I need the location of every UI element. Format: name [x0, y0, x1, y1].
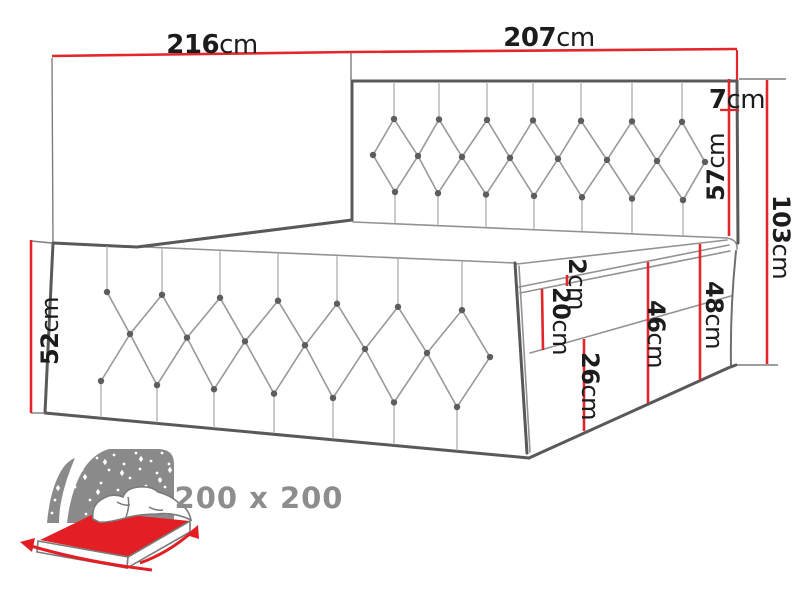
tuft-button [531, 193, 537, 199]
tuft-line [657, 161, 683, 200]
star-dot [85, 513, 88, 516]
tuft-button [578, 118, 584, 124]
tuft-button [629, 195, 635, 201]
tuft-button [507, 155, 513, 161]
tuft-line [462, 157, 486, 195]
tuft-button [217, 295, 223, 301]
mattress-silhouette [53, 220, 352, 247]
tuft-button [275, 298, 281, 304]
star-dot [108, 469, 111, 472]
bed-right-edge [731, 251, 736, 366]
tuft-button [391, 399, 397, 405]
tuft-line [365, 349, 394, 402]
tuft-line [462, 310, 490, 357]
tuft-button [395, 304, 401, 310]
star-dot [51, 512, 54, 515]
dimension-label-48: 48cm [700, 281, 728, 349]
dimension-label-207: 207cm [503, 23, 594, 53]
tuft-line [427, 353, 457, 407]
tuft-button [679, 119, 685, 125]
dimension-label-26: 26cm [576, 352, 604, 420]
tuft-line [365, 307, 398, 349]
tuft-line [395, 156, 418, 192]
tuft-button [555, 156, 561, 162]
tuft-line [214, 341, 245, 389]
tuft-line [333, 349, 365, 398]
tuft-button [454, 404, 460, 410]
tuft-line [245, 341, 274, 393]
dimension-label-46: 46cm [642, 300, 670, 368]
tuft-line [305, 345, 333, 398]
tuft-line [394, 119, 418, 156]
tuft-line [274, 345, 305, 393]
tuft-line [101, 334, 130, 381]
tuft-line [245, 301, 278, 342]
dimension-labels: 216cm 207cm 7cm 57cm 103cm 52cm 2cm 20cm… [36, 23, 795, 420]
tuft-line [394, 353, 427, 402]
tuft-line [558, 159, 582, 197]
dimension-label-7: 7cm [709, 85, 765, 115]
star-dot [168, 463, 171, 466]
tuft-line [657, 122, 682, 161]
tuft-line [533, 120, 558, 158]
tuft-line [418, 156, 438, 193]
star-dot [123, 463, 126, 466]
tuft-button [392, 189, 398, 195]
tuft-button [424, 350, 430, 356]
tuft-button [159, 292, 165, 298]
tuft-button [98, 378, 104, 384]
diagram-svg: 216cm 207cm 7cm 57cm 103cm 52cm 2cm 20cm… [0, 0, 800, 600]
tuft-button [680, 197, 686, 203]
tuft-line [581, 121, 607, 160]
tuft-line [107, 292, 130, 334]
tuft-button [579, 194, 585, 200]
side-panel-tufting [98, 246, 493, 450]
tuft-line [337, 304, 365, 349]
tuft-button [483, 191, 489, 197]
star-dot [129, 477, 132, 480]
tuft-line [510, 158, 534, 196]
tuft-line [582, 160, 607, 197]
extension-line-216 [52, 58, 53, 242]
tuft-button [370, 152, 376, 158]
mattress-corner-curve [727, 238, 737, 249]
size-label: 200 x 200 [175, 481, 344, 515]
dimension-label-20: 20cm [547, 287, 575, 355]
tuft-line [278, 301, 305, 345]
star-dot [150, 460, 153, 463]
star-dot [113, 454, 116, 457]
tuft-line [558, 121, 581, 159]
dimension-lines [31, 49, 786, 431]
tuft-line [162, 295, 187, 338]
tuft-line [457, 357, 490, 407]
tuft-button [415, 153, 421, 159]
tuft-line [632, 161, 657, 199]
bed-size-icon [20, 449, 199, 570]
tuft-button [211, 386, 217, 392]
star-dot [74, 486, 77, 489]
tuft-button [271, 390, 277, 396]
star-dot [161, 452, 164, 455]
tuft-button [184, 334, 190, 340]
tuft-line [220, 298, 245, 342]
tuft-line [130, 334, 157, 385]
tuft-line [487, 120, 510, 158]
tuft-line [157, 338, 187, 385]
bed-thin-lines [53, 222, 737, 452]
headboard-tufting [370, 82, 708, 235]
tuft-line [632, 121, 657, 161]
star-dot [81, 469, 84, 472]
tuft-line [462, 120, 487, 157]
tuft-line [439, 119, 462, 156]
star-dot [117, 489, 120, 492]
tuft-line [187, 298, 220, 338]
star-dot [164, 486, 167, 489]
tuft-button [459, 307, 465, 313]
tuft-button [391, 116, 397, 122]
tuft-button [530, 117, 536, 123]
dimension-label-103: 103cm [767, 195, 795, 279]
tuft-button [154, 382, 160, 388]
tuft-button [330, 395, 336, 401]
tuft-button [362, 346, 368, 352]
star-dot [96, 457, 99, 460]
tuft-line [373, 119, 394, 155]
tuft-line [486, 158, 510, 195]
tuft-button [104, 289, 110, 295]
tuft-button [334, 301, 340, 307]
tuft-line [398, 307, 427, 353]
dimension-label-57: 57cm [702, 133, 730, 201]
tuft-line [373, 155, 395, 192]
tuft-button [487, 354, 493, 360]
bed-dimension-diagram: 216cm 207cm 7cm 57cm 103cm 52cm 2cm 20cm… [0, 0, 800, 600]
tuft-line [510, 120, 533, 157]
icon-width-arrowhead [20, 538, 35, 552]
tuft-line [534, 159, 558, 196]
mattress-back-edge [353, 222, 727, 238]
tuft-line [607, 121, 632, 160]
dimension-line-216-207 [52, 49, 737, 56]
tuft-button [629, 118, 635, 124]
star-dot [100, 482, 103, 485]
tuft-line [418, 119, 439, 155]
tuft-line [438, 157, 462, 193]
dimension-line-20 [542, 289, 543, 350]
dimension-label-52: 52cm [36, 297, 64, 365]
star-dot [139, 468, 142, 471]
star-dot [54, 499, 57, 502]
dimension-label-216: 216cm [166, 30, 257, 60]
tuft-line [427, 310, 462, 353]
tuft-line [187, 338, 214, 390]
tuft-line [305, 304, 337, 345]
star-dot [156, 472, 159, 475]
star-dot [135, 452, 138, 455]
tuft-button [302, 342, 308, 348]
tuft-button [242, 338, 248, 344]
bed-drawing [45, 81, 738, 458]
tuft-button [459, 154, 465, 160]
tuft-line [607, 160, 632, 199]
tuft-button [436, 116, 442, 122]
tuft-button [654, 158, 660, 164]
tuft-button [604, 157, 610, 163]
tuft-button [484, 117, 490, 123]
tuft-button [435, 190, 441, 196]
extension-line-52-top [31, 241, 52, 243]
tuft-button [127, 331, 133, 337]
star-dot [89, 499, 92, 502]
tuft-line [130, 295, 162, 334]
right-face-bottom-edge [529, 365, 736, 458]
